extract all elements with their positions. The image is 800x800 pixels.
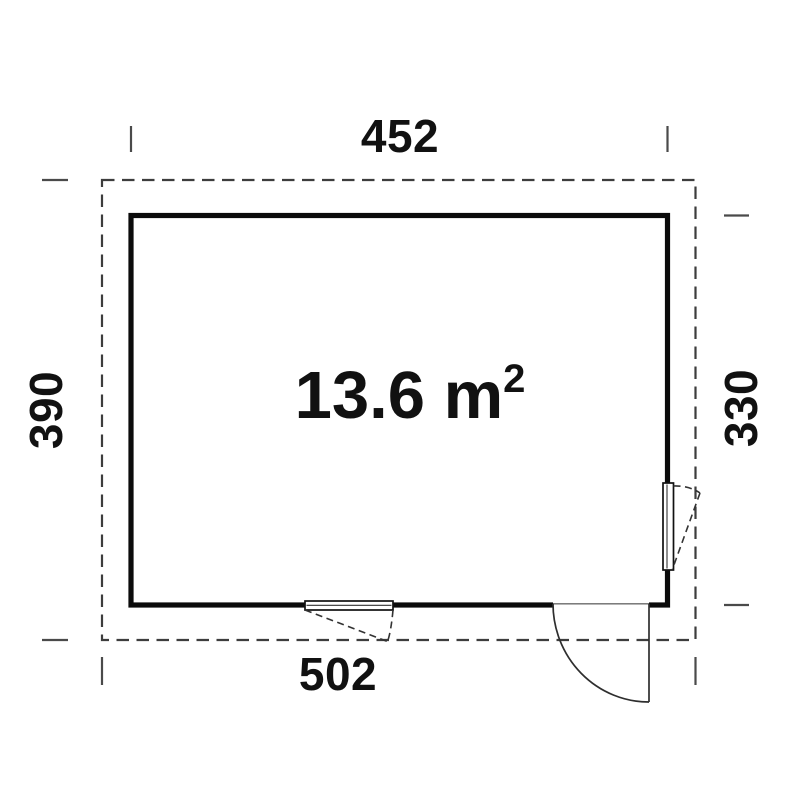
window-bottom-swing-side [388,610,394,642]
floor-area-label: 13.6 m2 [295,357,526,433]
floor-plan: 452 390 330 502 13.6 m2 [0,0,800,800]
window-right-frame [663,483,674,570]
dimension-right-depth-label: 330 [715,369,767,447]
floor-area-value: 13.6 m [295,358,504,433]
floor-plan-svg: 452 390 330 502 13.6 m2 [0,0,800,800]
window-bottom-swing-diagonal [305,610,388,642]
dimension-left-depth-label: 390 [20,371,72,449]
dimension-bottom-width-label: 502 [299,648,377,700]
entrance-door [553,602,649,703]
door-opening [553,602,649,611]
dimension-top-width-label: 452 [361,110,439,162]
door-swing-arc [553,604,649,702]
floor-area-superscript: 2 [503,357,525,401]
front-window [305,601,393,642]
